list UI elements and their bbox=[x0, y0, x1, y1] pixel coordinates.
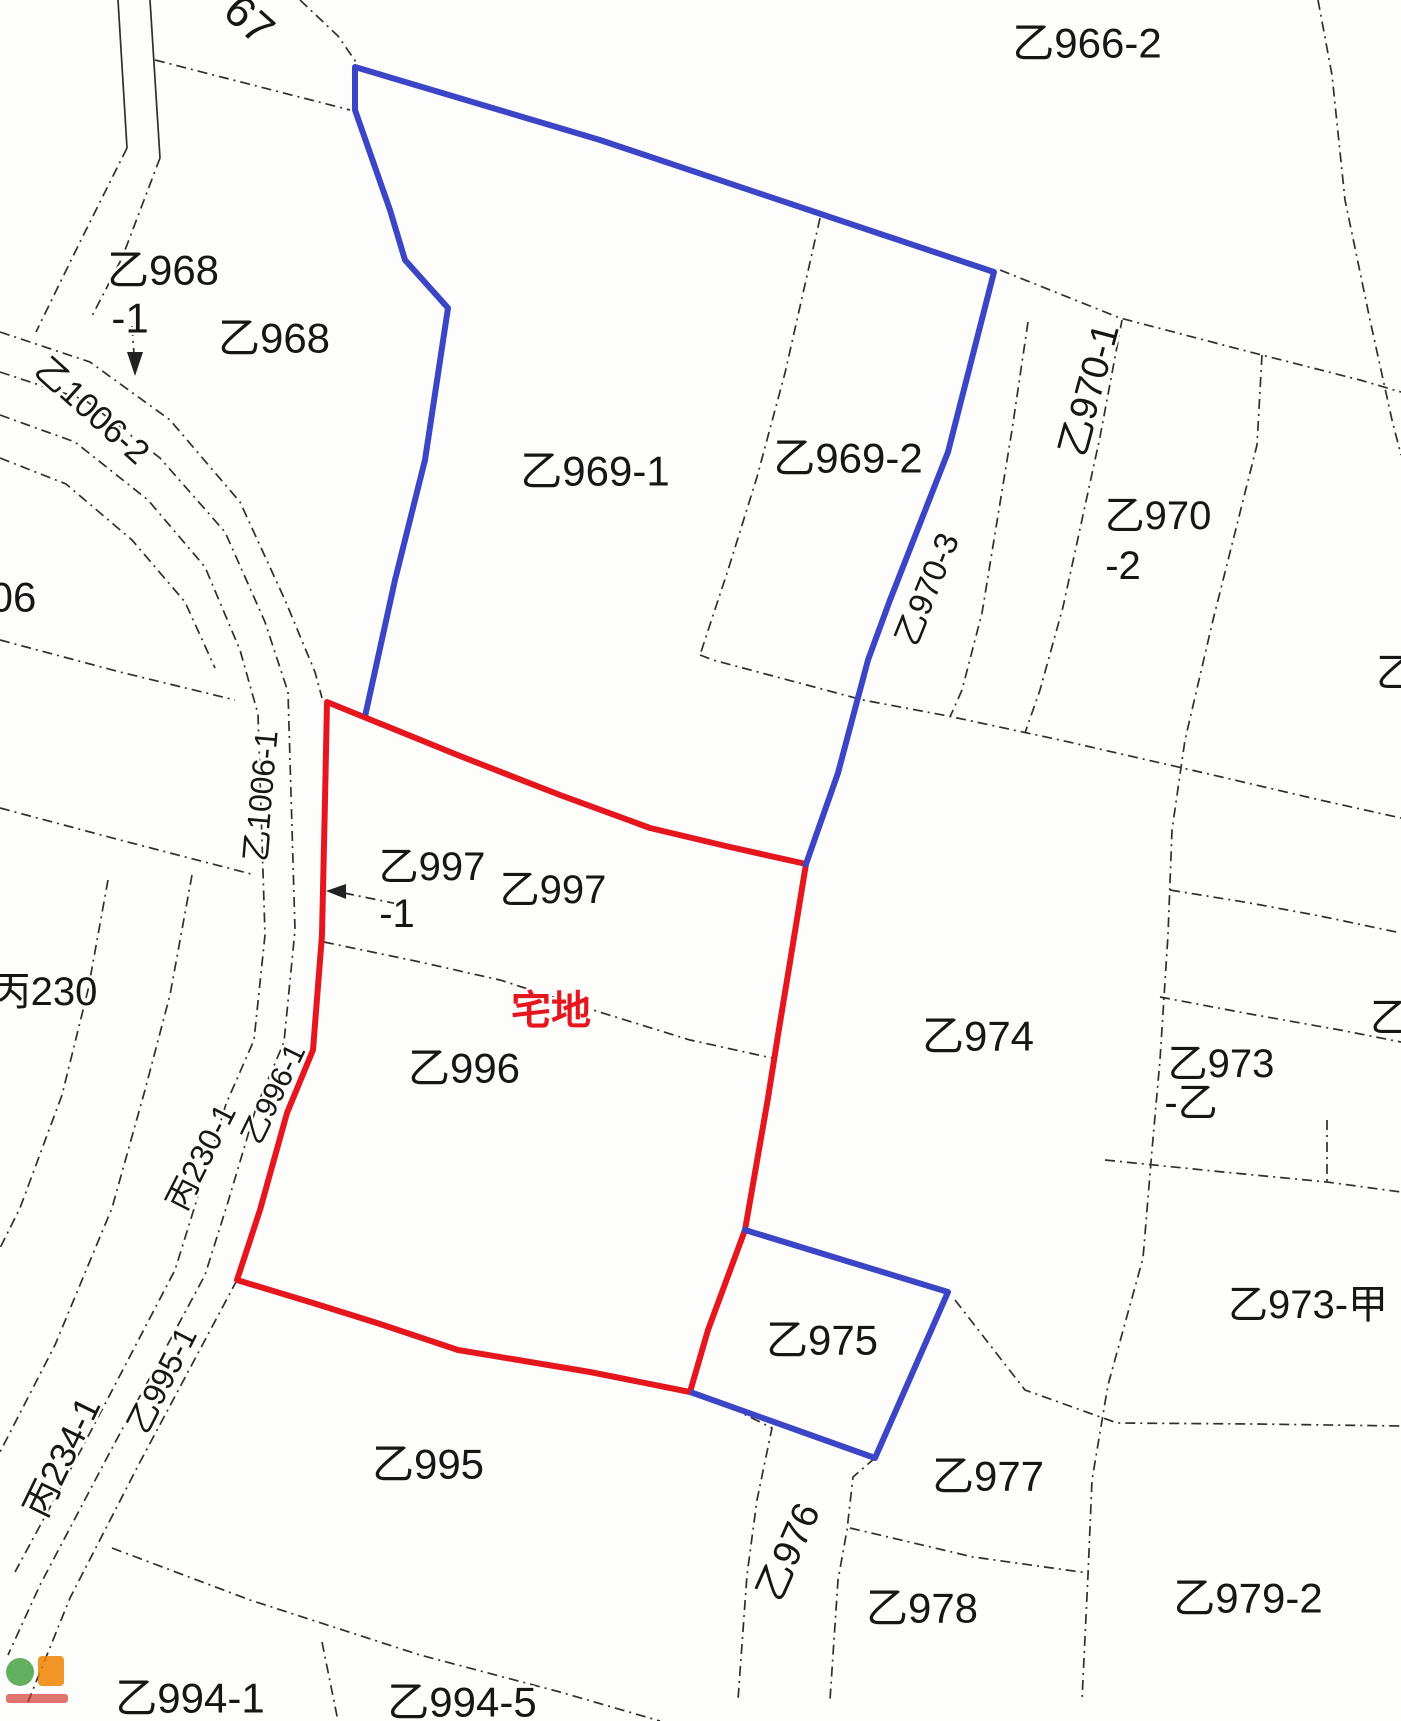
parcel-994-5: 乙994-5 bbox=[387, 1679, 536, 1721]
parcel-974: 乙974 bbox=[922, 1013, 1034, 1060]
parcel-968-1-line2: -1 bbox=[111, 295, 148, 342]
parcel-edge-partial-2: 乙 bbox=[1370, 996, 1401, 1040]
parcel-968-1-line1: 乙968 bbox=[107, 247, 219, 294]
parcel-977: 乙977 bbox=[932, 1453, 1044, 1500]
watermark-logo-orange bbox=[38, 1656, 64, 1686]
parcel-969-1: 乙969-1 bbox=[520, 448, 669, 495]
parcel-996: 乙996 bbox=[408, 1045, 520, 1092]
parcel-968: 乙968 bbox=[218, 315, 330, 362]
parcel-hei-230: 丙230 bbox=[0, 970, 97, 1014]
parcel-994-1: 乙994-1 bbox=[115, 1675, 264, 1721]
parcel-975: 乙975 bbox=[766, 1317, 878, 1364]
parcel-978: 乙978 bbox=[866, 1585, 978, 1632]
parcel-995: 乙995 bbox=[372, 1441, 484, 1488]
watermark-logo-green bbox=[6, 1658, 34, 1686]
parcel-997: 乙997 bbox=[500, 868, 607, 912]
parcel-966-2: 乙966-2 bbox=[1012, 20, 1161, 67]
parcel-973-ko: 乙973-甲 bbox=[1228, 1283, 1388, 1327]
parcel-969-2: 乙969-2 bbox=[773, 435, 922, 482]
parcel-973-line1: 乙973 bbox=[1168, 1042, 1275, 1086]
parcel-970-2-line1: 乙970 bbox=[1105, 494, 1212, 538]
parcel-997-1-line2: -1 bbox=[379, 892, 415, 936]
cadastral-map-page: 67乙966-2乙968-1乙968乙1006-206乙969-1乙969-2乙… bbox=[0, 0, 1401, 1721]
watermark-logo-red bbox=[6, 1694, 68, 1703]
parcel-06-partial: 06 bbox=[0, 574, 36, 621]
parcel-997-1-line1: 乙997 bbox=[379, 845, 486, 889]
parcel-edge-partial-1: 乙 bbox=[1376, 651, 1401, 695]
cadastral-map: 67乙966-2乙968-1乙968乙1006-206乙969-1乙969-2乙… bbox=[0, 0, 1401, 1721]
parcel-979-2: 乙979-2 bbox=[1173, 1575, 1322, 1622]
land-category-label: 宅地 bbox=[511, 988, 591, 1033]
parcel-973-line2: -乙 bbox=[1164, 1081, 1217, 1125]
parcel-970-2-line2: -2 bbox=[1105, 544, 1141, 588]
